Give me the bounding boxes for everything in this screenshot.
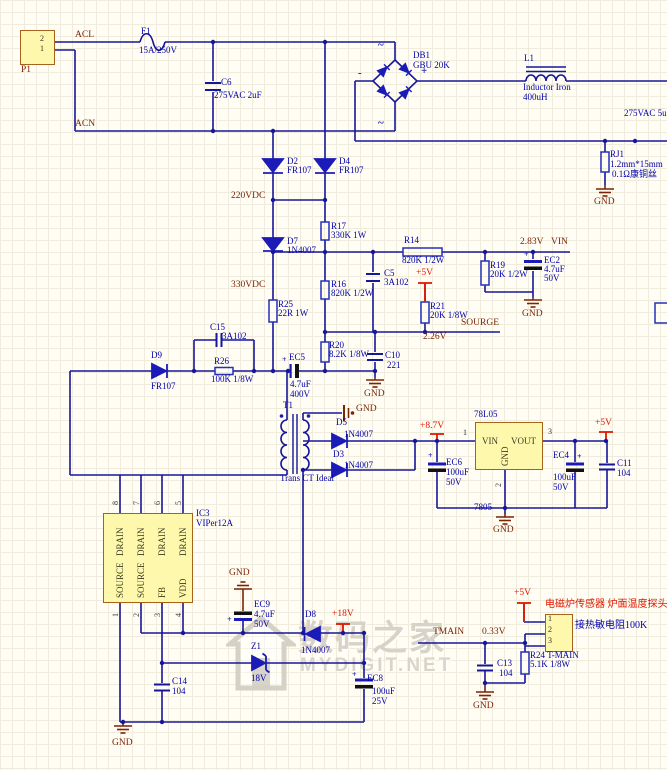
power-label-8v7: +8.7V [420,422,444,432]
gnd-label-c13: GND [473,702,494,712]
ic3-pinname-source2: SOURCE [137,562,146,598]
diode-d9-symbol [152,364,167,378]
ec4-plus: + [577,453,582,461]
r14-ref: R14 [404,236,419,245]
d9-value: FR107 [151,382,176,391]
ic3-pinname-drain1: DRAIN [116,528,125,557]
u78-ref: 78L05 [474,410,498,419]
gnd-snubber [366,377,384,387]
bridge-rectifier-db1-symbol [373,60,417,102]
sensor-note: 接热敏电阻100K [575,621,647,632]
db1-value: GBU 20K [413,61,450,70]
resistor-r25-symbol [269,300,277,322]
net-acl: ACL [75,31,94,41]
gnd-label-rj1: GND [594,198,615,208]
resistor-symbols [215,152,667,674]
sensor-pin2: 2 [548,626,552,634]
r25-value: 22R 1W [278,309,308,318]
power-flag-5v-r21 [418,283,432,302]
sensor-title: 电磁炉传感器 炉面温度探头 [545,600,667,611]
z1-value: 18V [251,674,267,683]
ec9-value2: 50V [254,620,270,629]
r26-value: 100K 1/8W [211,375,253,384]
r14-value: 820K 1/2W [402,256,444,265]
l1-ref: L1 [524,54,534,63]
ic3-pin1: 1 [112,613,120,617]
c14-value: 104 [172,687,186,696]
d3-value: 1N4007 [344,461,373,470]
net-acn: ACN [75,120,95,130]
capacitor-c14-symbol [154,685,170,691]
l1-value2: 400uH [523,93,548,102]
power-label-5v-r21: +5V [416,269,433,279]
capacitor-c5-symbol [366,274,380,281]
d5-value: 1N4007 [344,430,373,439]
d9-ref: D9 [151,351,162,360]
inductor-l1-symbol [526,67,566,81]
r24-value: 5.1K 1/8W [530,660,570,669]
u78-pin1-number: 1 [463,429,467,437]
ic3-pin5: 5 [175,501,183,505]
p1-ref: P1 [21,66,31,76]
u78-sub: 7805 [474,503,492,512]
gnd-rj1 [596,185,614,196]
ec6-value2: 50V [446,478,462,487]
capacitor-ec5-symbol [290,364,300,378]
net-2v83: 2.83V [520,238,544,248]
power-label-5v-sensor: +5V [514,589,531,599]
f1-value: 15A/250V [139,46,177,55]
ec2-plus: + [524,251,529,259]
u78-pin-vout: VOUT [511,437,536,446]
net-275vac: 275VAC 5u [624,109,667,118]
diode-d8-symbol [305,627,321,641]
c6-ref: C6 [221,78,232,87]
rj1-value2: 0.1Ω康铜丝 [612,170,657,179]
ec6-plus: + [428,452,433,460]
ec5-value2: 400V [290,390,310,399]
capacitor-c13-symbol [477,666,493,671]
ec5-ref: EC5 [289,353,305,362]
gnd-label-transformer: GND [356,405,377,415]
z1-ref: Z1 [251,642,261,651]
p1-pin1: 1 [40,45,44,53]
resistor-rj1-symbol [601,152,609,172]
capacitor-c6-symbol [205,83,221,90]
ic3-pinname-fb: FB [158,587,167,598]
capacitor-c11-symbol [599,465,615,470]
capacitor-ec9-symbol [234,612,252,622]
d4-value: FR107 [339,166,364,175]
c6-value: 275VAC 2uF [214,91,262,100]
d3-ref: D3 [333,450,344,459]
c10-value: 221 [387,361,401,370]
gnd-label-c10: GND [364,390,385,400]
ic3-pin7: 7 [133,501,141,505]
ec9-plus: + [227,616,232,624]
p1-pin2: 2 [40,35,44,43]
capacitor-ec6-symbol [428,463,446,473]
gnd-label-ec9: GND [229,569,250,579]
c11-value: 104 [617,469,631,478]
d2-value: FR107 [287,166,312,175]
partial-component-box [655,303,667,323]
gnd-c13 [476,683,494,699]
schematic-canvas: 数码之家 MYDIGIT.NET [0,0,667,770]
ec5-plus: + [282,356,287,364]
ic3-pin3: 3 [154,613,162,617]
ic3-pin8: 8 [112,501,120,505]
c15-value: 3A102 [222,332,247,341]
gnd-above-ec9 [234,582,252,611]
net-220vdc: 220VDC [231,192,265,202]
gnd-label-7805: GND [493,526,514,536]
ic3-pinname-drain4: DRAIN [179,528,188,557]
zener-z1-symbol [252,654,270,673]
r19-value: 20K 1/2W [490,270,528,279]
ic3-pinname-vdd: VDD [179,579,188,599]
r17-value: 330K 1W [331,231,366,240]
t1-ref: T1 [283,401,293,410]
connector-p1-box [20,30,55,65]
c13-value: 104 [499,669,513,678]
ec4-ref: EC4 [553,451,569,460]
resistor-r17-symbol [321,222,329,240]
net-sourge: SOURGE [461,319,499,329]
r20-value: 8.2K 1/8W [329,350,369,359]
u78-pin-vin: VIN [482,437,498,446]
gnd-7805 [496,514,514,524]
resistor-r20-symbol [321,342,329,362]
d5-ref: D5 [336,418,347,427]
net-0v33: 0.33V [482,628,506,638]
bridge-ac-mark-bottom: ~ [378,118,384,130]
ic3-pinname-drain2: DRAIN [137,528,146,557]
resistor-r16-symbol [321,281,329,299]
capacitor-c15-symbol [217,333,222,347]
power-label-5v-u78: +5V [595,419,612,429]
net-2v26: 2.26V [423,333,447,343]
f1-ref: F1 [141,27,151,36]
diode-d4-symbol [315,159,335,173]
gnd-label-bottom-left: GND [112,739,133,749]
u78-pin-gnd: GND [501,447,510,467]
transformer-t1-symbol [280,414,311,474]
ec8-ref: EC8 [367,674,383,683]
d8-value: 1N4007 [301,646,330,655]
net-tmain: TMAIN [433,628,464,638]
capacitor-ec4-symbol [566,463,584,473]
gnd-ec2 [524,297,542,307]
sensor-pin1: 1 [548,615,552,623]
resistor-r19-symbol [481,261,489,285]
sensor-pin3: 3 [548,637,552,645]
u78-pin2-number: 2 [495,483,503,487]
u78-pin3-number: 3 [548,428,552,436]
diode-d7-symbol [263,238,283,251]
r16-value: 820K 1/2W [331,289,373,298]
d8-ref: D8 [305,610,316,619]
capacitor-c10-symbol [367,354,383,360]
bridge-minus-mark: - [358,68,362,80]
bridge-plus-mark: + [421,66,427,78]
r26-ref: R26 [214,357,229,366]
net-vin: VIN [551,238,568,248]
ic3-pinname-source1: SOURCE [116,562,125,598]
power-label-18v: +18V [332,610,354,620]
ic3-pin4: 4 [175,613,183,617]
gnd-label-ec2: GND [522,310,543,320]
power-flag-5v-sensor [517,603,531,622]
ec8-plus: + [352,671,357,679]
ic3-pin2: 2 [133,613,141,617]
resistor-r21-symbol [421,302,429,323]
diode-d2-symbol [263,159,283,173]
bridge-ac-mark-top: ~ [378,40,384,52]
t1-value: Trans CT Ideal [280,474,334,483]
ic3-pin6: 6 [154,501,162,505]
ic3-pinname-drain3: DRAIN [158,528,167,557]
c5-value: 3A102 [384,278,409,287]
resistor-r24-symbol [521,652,529,674]
d7-value: 1N4007 [287,246,316,255]
ec2-value2: 50V [544,274,560,283]
ec8-value2: 25V [372,697,388,706]
net-330vdc: 330VDC [231,281,265,291]
ec4-value2: 50V [553,483,569,492]
ic3-value: VIPer12A [196,519,233,528]
